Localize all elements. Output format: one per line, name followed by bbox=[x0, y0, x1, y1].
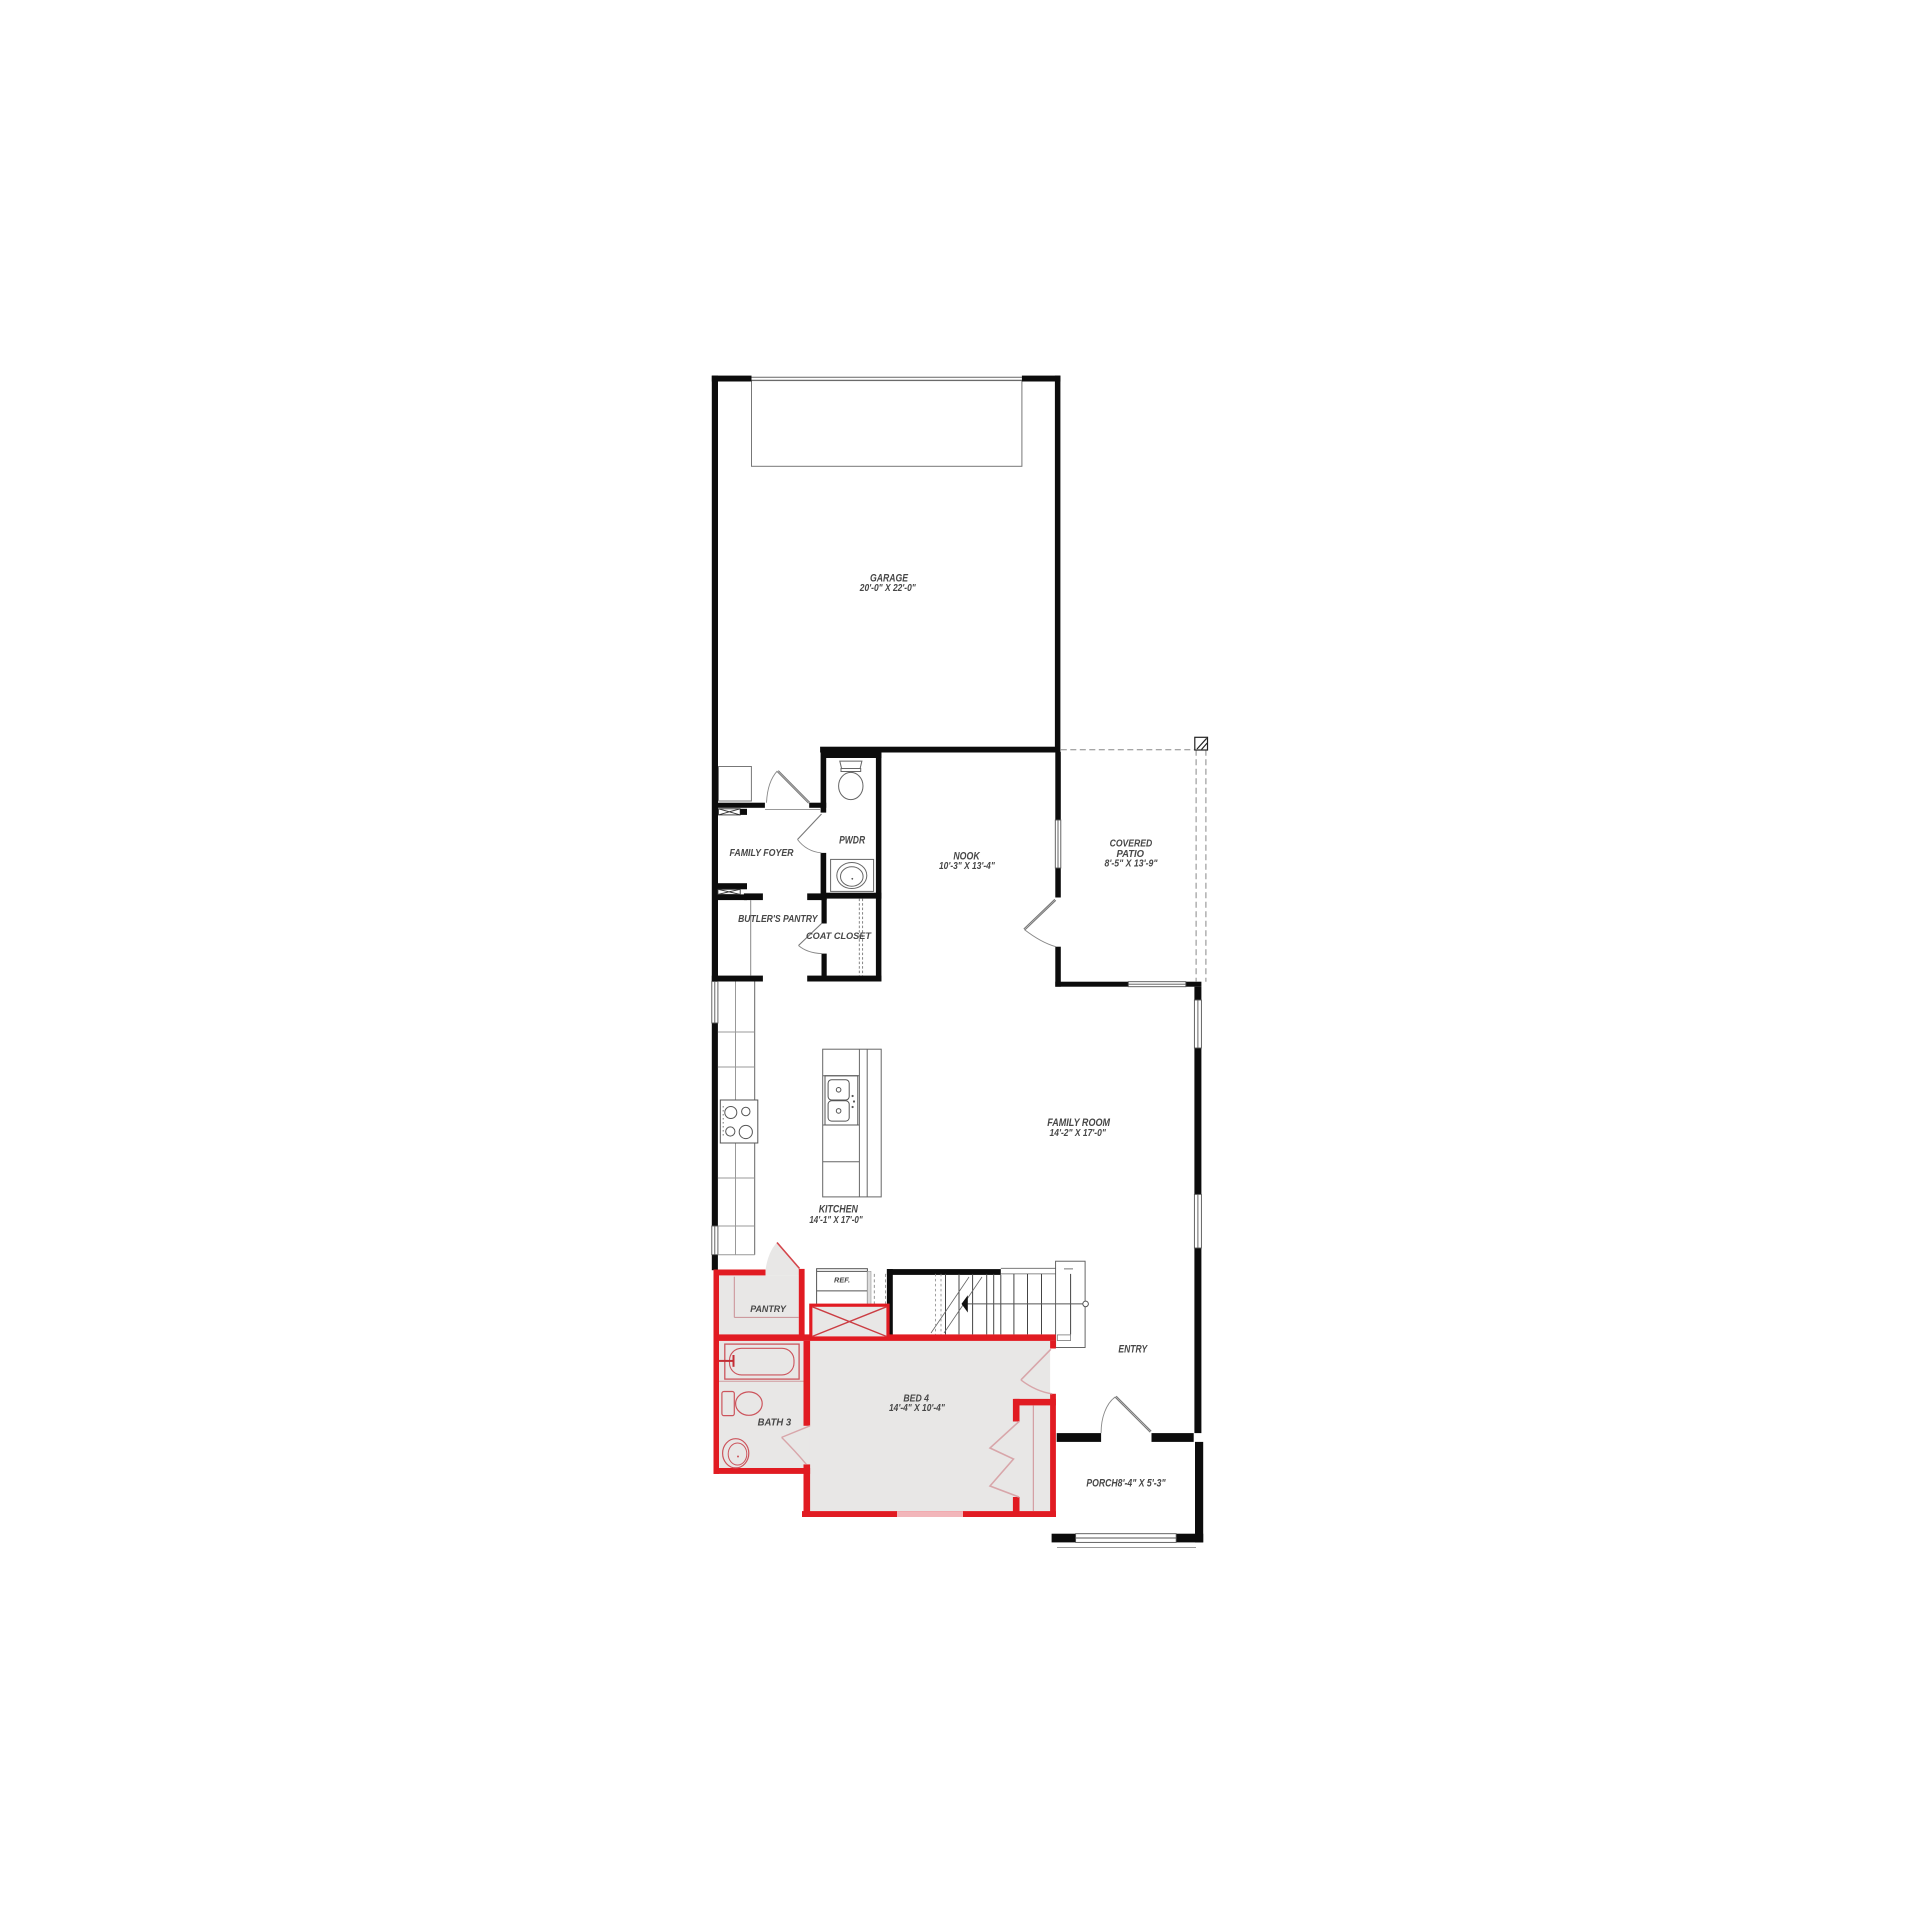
svg-text:PANTRY: PANTRY bbox=[750, 1304, 787, 1315]
svg-text:8'-5" X 13'-9": 8'-5" X 13'-9" bbox=[1105, 858, 1158, 869]
svg-text:BUTLER'S PANTRY: BUTLER'S PANTRY bbox=[738, 914, 819, 925]
svg-text:14'-4" X 10'-4": 14'-4" X 10'-4" bbox=[889, 1403, 945, 1414]
svg-text:REF.: REF. bbox=[834, 1278, 850, 1285]
svg-text:BATH 3: BATH 3 bbox=[758, 1418, 792, 1429]
svg-text:20'-0" X 22'-0": 20'-0" X 22'-0" bbox=[859, 583, 916, 594]
svg-text:COAT CLOSET: COAT CLOSET bbox=[806, 931, 872, 942]
svg-text:PORCH8'-4" X 5'-3": PORCH8'-4" X 5'-3" bbox=[1086, 1477, 1166, 1489]
svg-text:ENTRY: ENTRY bbox=[1118, 1343, 1148, 1355]
svg-text:FAMILY FOYER: FAMILY FOYER bbox=[730, 848, 795, 859]
svg-text:14'-1" X 17'-0": 14'-1" X 17'-0" bbox=[809, 1215, 863, 1226]
svg-text:PWDR: PWDR bbox=[839, 834, 865, 846]
svg-text:14'-2" X 17'-0": 14'-2" X 17'-0" bbox=[1050, 1128, 1107, 1139]
svg-text:10'-3" X 13'-4": 10'-3" X 13'-4" bbox=[939, 861, 995, 872]
svg-text:KITCHEN: KITCHEN bbox=[819, 1204, 859, 1216]
